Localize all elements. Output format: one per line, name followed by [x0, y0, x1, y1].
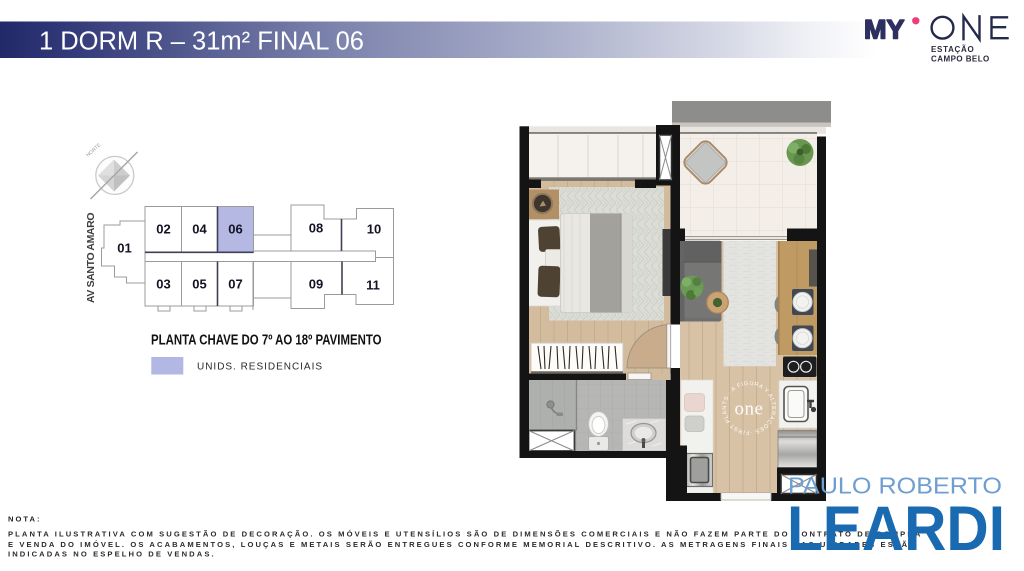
- svg-text:02: 02: [156, 222, 170, 237]
- svg-text:UNIDS. RESIDENCIAIS: UNIDS. RESIDENCIAIS: [197, 362, 324, 373]
- svg-text:04: 04: [192, 222, 207, 237]
- svg-text:07: 07: [228, 277, 242, 292]
- svg-text:09: 09: [309, 277, 323, 292]
- svg-text:one: one: [735, 399, 764, 420]
- svg-text:05: 05: [192, 277, 206, 292]
- svg-text:01: 01: [117, 241, 131, 256]
- svg-text:ESTAÇÃO: ESTAÇÃO: [931, 45, 974, 54]
- svg-text:1 DORM R – 31m² FINAL 06: 1 DORM R – 31m² FINAL 06: [39, 28, 364, 56]
- svg-text:E VENDA DO IMÓVEL. OS ACABAMEN: E VENDA DO IMÓVEL. OS ACABAMENTOS, LOUÇA…: [8, 540, 917, 549]
- svg-text:11: 11: [366, 278, 380, 293]
- svg-text:LEARDI: LEARDI: [787, 494, 1005, 564]
- svg-text:03: 03: [156, 277, 170, 292]
- svg-text:10: 10: [367, 222, 381, 237]
- svg-text:INDICADAS NO ESPELHO DE VENDAS: INDICADAS NO ESPELHO DE VENDAS.: [8, 549, 216, 558]
- svg-text:MY: MY: [864, 15, 905, 45]
- svg-text:06: 06: [228, 222, 242, 237]
- svg-text:08: 08: [309, 221, 323, 236]
- svg-text:AV SANTO AMARO: AV SANTO AMARO: [85, 212, 97, 303]
- svg-text:NOTA:: NOTA:: [8, 515, 41, 524]
- svg-text:CAMPO BELO: CAMPO BELO: [931, 55, 990, 64]
- svg-text:NORTE: NORTE: [85, 142, 102, 159]
- svg-text:PLANTA ILUSTRATIVA COM SUGESTÃ: PLANTA ILUSTRATIVA COM SUGESTÃO DE DECOR…: [8, 529, 923, 538]
- svg-text:PLANTA CHAVE DO 7º AO 18º PAVI: PLANTA CHAVE DO 7º AO 18º PAVIMENTO: [151, 333, 382, 349]
